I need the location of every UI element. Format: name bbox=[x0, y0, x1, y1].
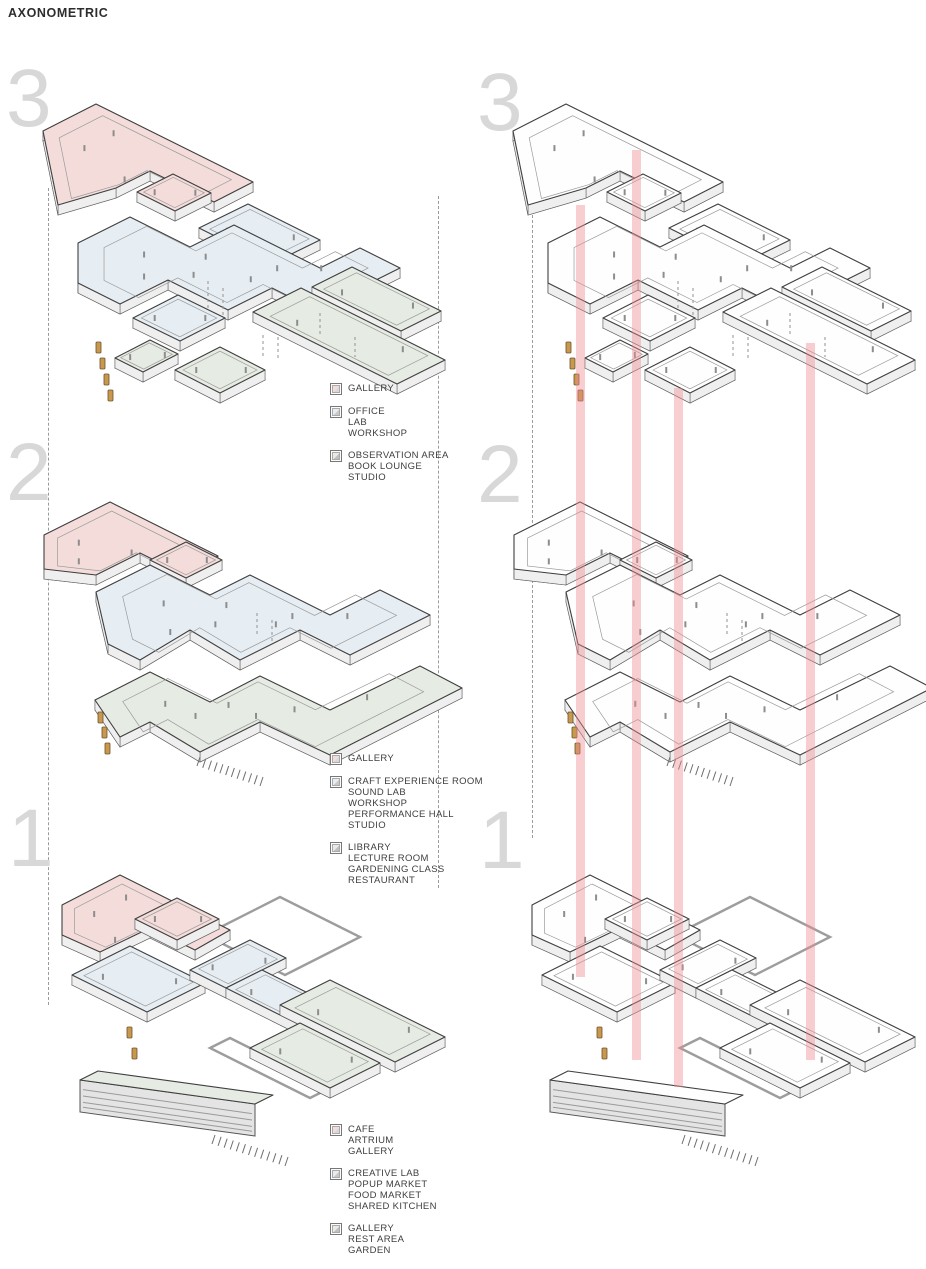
legend-line: POPUP MARKET bbox=[348, 1179, 437, 1190]
legend-line: OBSERVATION AREA bbox=[348, 450, 449, 461]
legend-line: ARTRIUM bbox=[348, 1135, 394, 1146]
legend-level-3: GALLERY OFFICE LAB WORKSHOP OBSERVATION … bbox=[330, 383, 500, 483]
page-title: AXONOMETRIC bbox=[8, 6, 108, 20]
legend-line: GALLERY bbox=[348, 383, 394, 394]
legend-line: WORKSHOP bbox=[348, 428, 407, 439]
legend-level-2: GALLERY CRAFT EXPERIENCE ROOM SOUND LAB … bbox=[330, 753, 500, 886]
legend-line: GALLERY bbox=[348, 753, 394, 764]
zone-key-icon bbox=[330, 1223, 342, 1235]
legend-item: CAFE ARTRIUM GALLERY bbox=[330, 1124, 500, 1157]
circulation-riser bbox=[632, 150, 641, 1060]
legend-line: FOOD MARKET bbox=[348, 1190, 437, 1201]
circulation-riser bbox=[806, 343, 815, 1060]
axon-level-2-circulation bbox=[490, 462, 926, 807]
legend-line: WORKSHOP bbox=[348, 798, 483, 809]
zone-key-icon bbox=[330, 753, 342, 765]
legend-line: CREATIVE LAB bbox=[348, 1168, 437, 1179]
legend-line: LIBRARY bbox=[348, 842, 445, 853]
legend-line: GARDEN bbox=[348, 1245, 404, 1256]
legend-line: STUDIO bbox=[348, 820, 483, 831]
circulation-riser bbox=[674, 388, 683, 1087]
zone-key-icon bbox=[330, 1168, 342, 1180]
zone-key-icon bbox=[330, 1124, 342, 1136]
legend-line: BOOK LOUNGE bbox=[348, 461, 449, 472]
circulation-riser bbox=[576, 205, 585, 977]
axonometric-sheet: AXONOMETRIC 3 2 1 3 2 1 GALLERY OFFICE L… bbox=[0, 0, 926, 1269]
legend-line: OFFICE bbox=[348, 406, 407, 417]
legend-line: PERFORMANCE HALL bbox=[348, 809, 483, 820]
zone-key-icon bbox=[330, 383, 342, 395]
legend-item: LIBRARY LECTURE ROOM GARDENING CLASS RES… bbox=[330, 842, 500, 886]
axon-level-3-circulation bbox=[490, 85, 926, 430]
legend-item: GALLERY bbox=[330, 753, 500, 765]
zone-key-icon bbox=[330, 776, 342, 788]
legend-item: CREATIVE LAB POPUP MARKET FOOD MARKET SH… bbox=[330, 1168, 500, 1212]
legend-line: LAB bbox=[348, 417, 407, 428]
legend-line: LECTURE ROOM bbox=[348, 853, 445, 864]
legend-item: GALLERY REST AREA GARDEN bbox=[330, 1223, 500, 1256]
legend-line: SHARED KITCHEN bbox=[348, 1201, 437, 1212]
axon-level-1-circulation bbox=[490, 830, 926, 1175]
legend-item: GALLERY bbox=[330, 383, 500, 395]
legend-line: RESTAURANT bbox=[348, 875, 445, 886]
axon-level-3-zoned bbox=[20, 85, 470, 430]
zone-key-icon bbox=[330, 406, 342, 418]
legend-level-1: CAFE ARTRIUM GALLERY CREATIVE LAB POPUP … bbox=[330, 1124, 500, 1256]
zone-key-icon bbox=[330, 842, 342, 854]
legend-line: SOUND LAB bbox=[348, 787, 483, 798]
legend-line: CRAFT EXPERIENCE ROOM bbox=[348, 776, 483, 787]
legend-line: GARDENING CLASS bbox=[348, 864, 445, 875]
legend-item: OBSERVATION AREA BOOK LOUNGE STUDIO bbox=[330, 450, 500, 483]
legend-line: GALLERY bbox=[348, 1146, 394, 1157]
legend-item: OFFICE LAB WORKSHOP bbox=[330, 406, 500, 439]
legend-item: CRAFT EXPERIENCE ROOM SOUND LAB WORKSHOP… bbox=[330, 776, 500, 831]
zone-key-icon bbox=[330, 450, 342, 462]
legend-line: STUDIO bbox=[348, 472, 449, 483]
legend-line: GALLERY bbox=[348, 1223, 404, 1234]
legend-line: CAFE bbox=[348, 1124, 394, 1135]
legend-line: REST AREA bbox=[348, 1234, 404, 1245]
